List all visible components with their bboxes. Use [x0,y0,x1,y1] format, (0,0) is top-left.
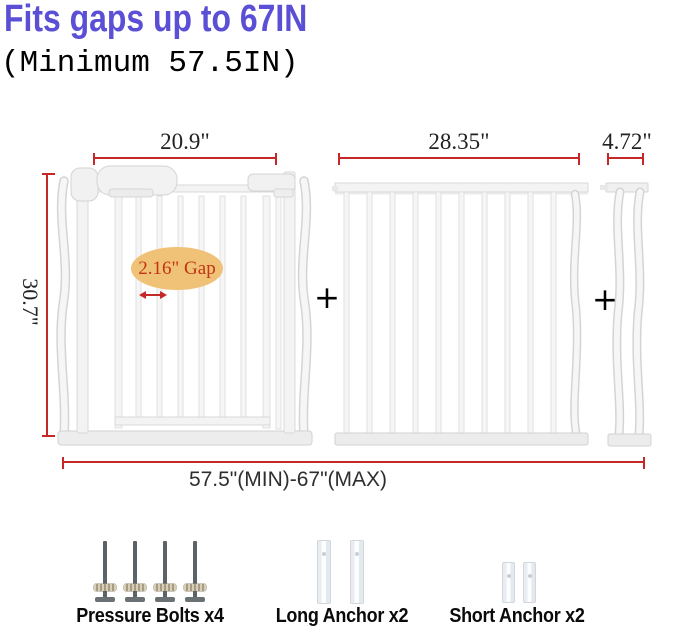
gap-callout-text: 2.16" Gap [138,258,215,280]
plus-sign-left: + [314,283,340,314]
long-anchor-label: Long Anchor x2 [270,605,414,628]
long-anchor-icon [350,540,364,604]
dimension-line-gate-width [93,157,277,159]
small-extension-tubes [617,192,640,434]
extension-top-rail [335,183,588,192]
gate-left-post [77,172,88,433]
gate-base-bar [58,431,312,445]
pressure-bolts-label: Pressure Bolts x4 [69,605,231,628]
dim-label-gate-width: 20.9" [93,129,277,155]
dimension-line-total-width [62,461,645,463]
gap-double-arrow-icon [139,291,167,299]
small-extension-bottom-cap [608,434,651,446]
pressure-bolt-icon [122,541,148,603]
gate-latch [248,174,295,197]
dimension-line-small-extension-width [607,157,644,159]
small-extension-tab [600,185,608,190]
dimension-line-extension-width [338,157,580,159]
gate-door-bars [115,179,281,429]
gap-callout-ellipse: 2.16" Gap [131,247,223,290]
pressure-bolt-icon [92,541,118,603]
dim-label-total-range: 57.5"(MIN)-67"(MAX) [62,468,514,492]
door-bottom-rail [115,417,270,425]
extension-wavy-bar [574,194,577,432]
dim-label-extension-width: 28.35" [338,129,580,155]
gate-right-post [284,172,295,433]
extension-left-tab [332,186,338,191]
subtitle-minimum-width: (Minimum 57.5IN) [1,46,299,81]
extension-bottom-rail [335,433,588,445]
short-anchor-icon [523,562,536,603]
short-anchor-label: Short Anchor x2 [445,605,589,628]
short-anchor-icon [502,562,515,603]
plus-sign-right: + [592,285,618,316]
main-gate-panel [52,165,317,455]
extension-bars [344,192,556,433]
long-anchor-icon [317,540,331,604]
dimension-line-height [46,173,48,437]
pressure-bolt-icon [152,541,178,603]
product-dimension-diagram: Fits gaps up to 67IN (Minimum 57.5IN) 20… [0,0,679,637]
extension-panel-large [332,178,592,453]
page-title: Fits gaps up to 67IN [4,0,307,41]
dim-label-height: 30.7" [17,254,43,350]
pressure-bolt-icon [182,541,208,603]
dim-label-small-extension-width: 4.72" [585,129,669,155]
